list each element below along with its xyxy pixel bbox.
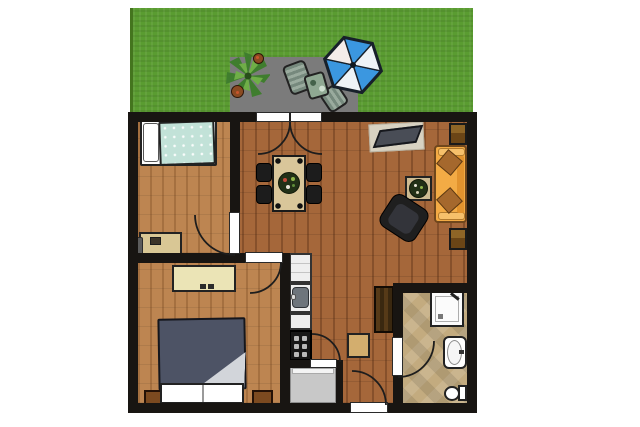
storage-door-opening	[310, 359, 337, 368]
terrace-door-opening	[256, 112, 322, 122]
bathroom-door-opening	[392, 337, 403, 376]
single-bed-pillow	[143, 123, 159, 162]
double-bed-pillows	[160, 383, 244, 404]
wall-storage-north	[290, 360, 312, 368]
shower	[430, 291, 464, 327]
dining-chair-1	[256, 163, 272, 182]
flower-pot-small	[253, 53, 264, 64]
single-bed-blanket	[158, 120, 216, 166]
dining-chair-2	[256, 185, 272, 204]
wall-bathroom-north	[393, 283, 467, 293]
wall-bedroom2-north-west	[128, 253, 246, 263]
bedroom1-door-opening	[229, 212, 240, 254]
kitchen-counter	[289, 313, 312, 330]
wall-outer-bottom	[128, 403, 477, 413]
entrance-door-opening	[350, 402, 388, 413]
toilet-tank	[458, 385, 467, 401]
bedroom2-door-opening	[245, 252, 283, 263]
dining-chair-3	[306, 163, 322, 182]
dining-chair-4	[306, 185, 322, 204]
dresser	[172, 265, 236, 292]
coffee-table-plant	[409, 179, 428, 198]
storage-room-threshold	[292, 368, 334, 374]
wall-bedroom2-east	[280, 253, 290, 413]
kitchen-faucet	[291, 294, 296, 300]
flower-pot-large	[231, 85, 244, 98]
stove	[289, 330, 312, 361]
hall-side-table	[347, 333, 370, 358]
bathroom-sink	[443, 336, 467, 369]
floor-plan-image	[0, 0, 640, 427]
table-plant	[278, 172, 300, 194]
wall-outer-right	[467, 112, 477, 413]
hall-wardrobe	[374, 286, 394, 333]
desk-item	[150, 237, 161, 245]
wall-unit-bottom	[449, 228, 467, 250]
parasol	[320, 32, 386, 98]
wall-unit-top	[449, 123, 467, 145]
wall-storage-east	[336, 360, 343, 413]
wall-bedroom1-east-upper	[230, 112, 240, 213]
fridge	[289, 253, 312, 283]
wall-bathroom-west-lower	[393, 375, 403, 413]
